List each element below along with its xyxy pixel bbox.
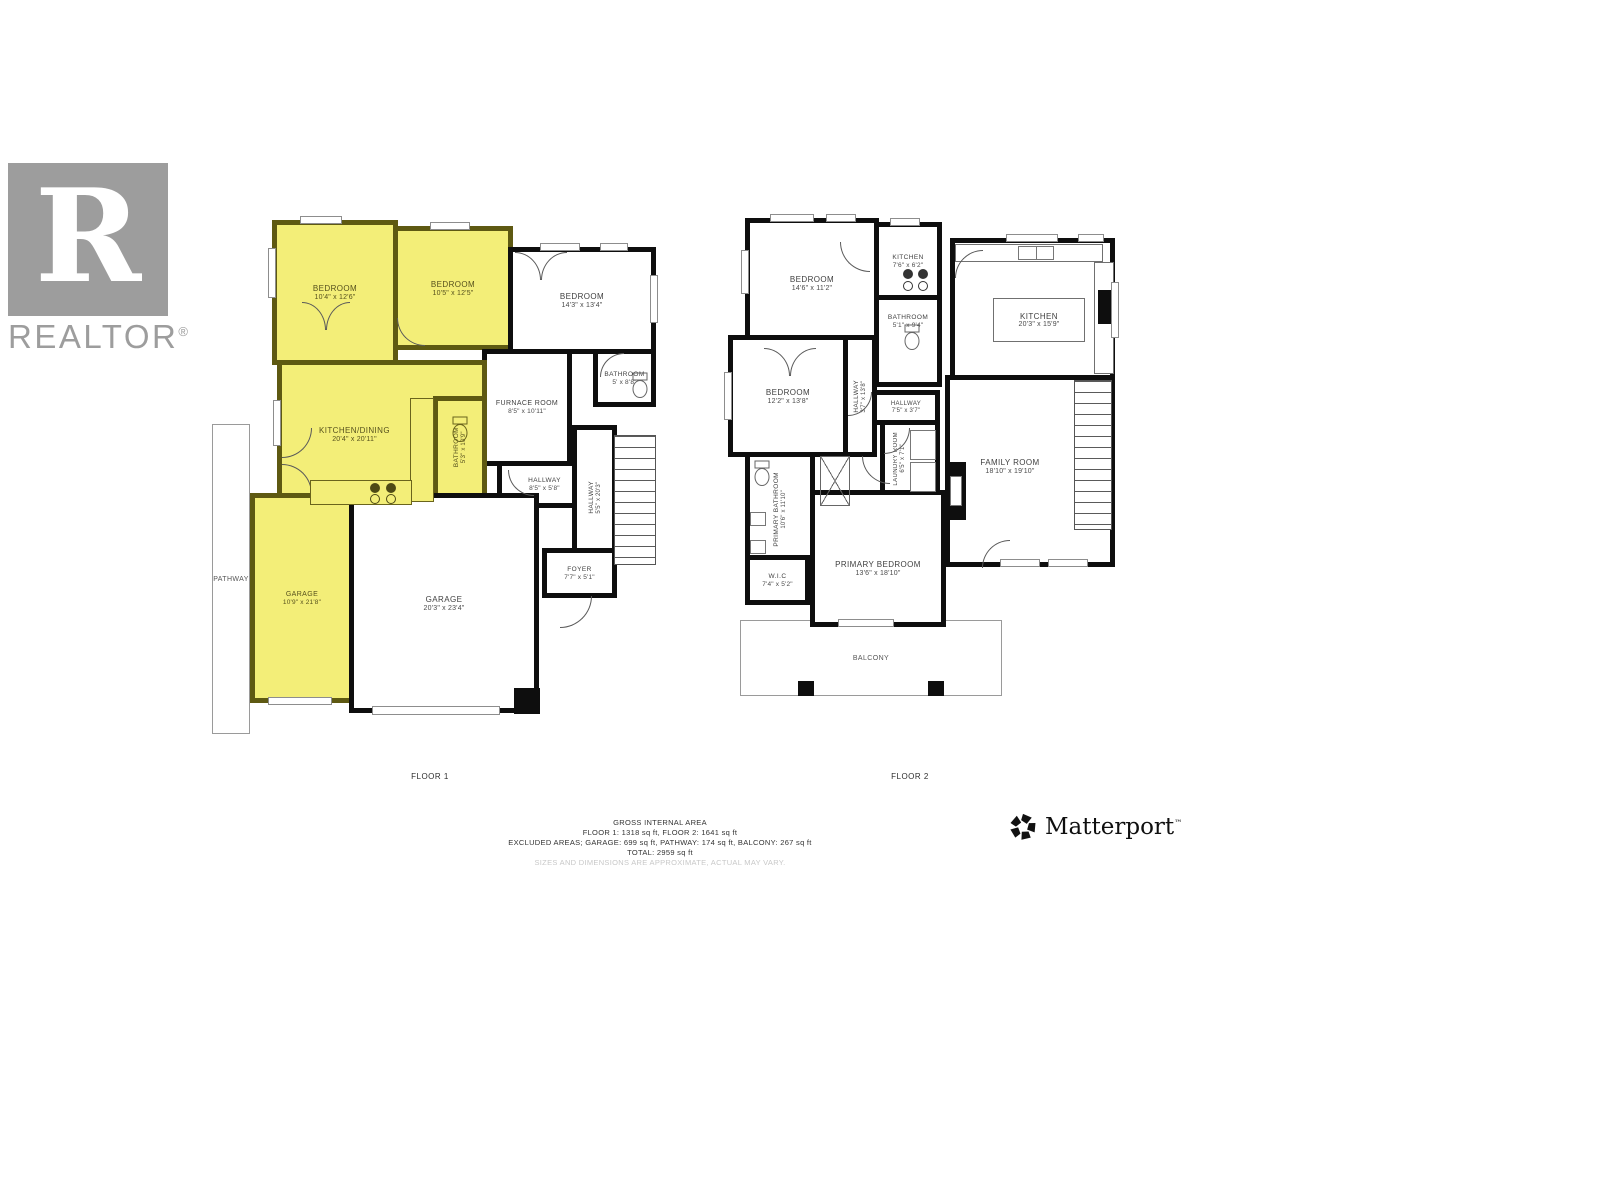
room-dims: 7'4" x 5'2"	[762, 581, 793, 588]
vanity-sink	[750, 512, 766, 526]
matterport-wordmark-text: Matterport	[1045, 814, 1174, 840]
room-dims: 20'3" x 23'4"	[424, 605, 465, 612]
room-dims: 10'4" x 12'6"	[314, 294, 355, 301]
room-name: PRIMARY BEDROOM	[835, 560, 921, 569]
area-summary-title: GROSS INTERNAL AREA	[420, 818, 900, 828]
window	[1006, 234, 1058, 242]
room-bedroom-b: BEDROOM 12'2" x 13'8"	[728, 335, 848, 457]
window	[540, 243, 580, 251]
room-dims: 10'9" x 21'8"	[283, 599, 321, 606]
room-name: KITCHEN/DINING	[319, 426, 390, 435]
toilet-icon	[630, 372, 650, 400]
staircase-floor1	[614, 435, 656, 565]
vanity-sink	[750, 540, 766, 554]
area-summary-total: TOTAL: 2959 sq ft	[420, 848, 900, 858]
toilet-icon	[752, 460, 772, 488]
window	[430, 222, 470, 230]
floor2-caption: FLOOR 2	[860, 772, 960, 781]
room-dims: 7'5" x 3'7"	[892, 408, 920, 414]
balcony-area: BALCONY	[740, 620, 1002, 696]
room-name: KITCHEN	[892, 254, 923, 261]
door-arc	[862, 456, 890, 484]
room-name: GARAGE	[426, 595, 463, 604]
realtor-wordmark: REALTOR®	[8, 318, 180, 356]
window	[770, 214, 814, 222]
window	[838, 619, 894, 627]
room-name: HALLWAY	[891, 401, 921, 407]
area-summary-excluded: EXCLUDED AREAS; GARAGE: 699 sq ft, PATHW…	[420, 838, 900, 848]
shower	[820, 456, 850, 506]
matterport-logo: Matterport™	[1008, 812, 1182, 842]
room-dims: 18'10" x 19'10"	[985, 468, 1034, 475]
area-summary-disclaimer: SIZES AND DIMENSIONS ARE APPROXIMATE, AC…	[420, 858, 900, 868]
room-name: BEDROOM	[313, 284, 357, 293]
room-name: FOYER	[567, 566, 591, 573]
room-dims: 12'2" x 13'8"	[767, 398, 808, 405]
room-dims: 13'6" x 18'10"	[855, 570, 900, 577]
window	[273, 400, 281, 446]
room-dims: 14'6" x 11'2"	[792, 285, 832, 292]
area-summary-floors: FLOOR 1: 1318 sq ft, FLOOR 2: 1641 sq ft	[420, 828, 900, 838]
window	[600, 243, 628, 251]
dryer	[910, 462, 936, 492]
realtor-r-letter: R	[35, 173, 141, 301]
floor1-caption: FLOOR 1	[380, 772, 480, 781]
window	[890, 218, 920, 226]
room-name: BEDROOM	[431, 280, 475, 289]
garage-door-opening	[268, 697, 332, 705]
room-bathroom-2: BATHROOM 5'3" x 10'9"	[433, 396, 487, 498]
room-name: BEDROOM	[790, 275, 834, 284]
room-name: GARAGE	[286, 591, 318, 598]
window	[1048, 559, 1088, 567]
window	[300, 216, 342, 224]
room-wic: W.I.C 7'4" x 5'2"	[745, 555, 810, 605]
room-bedroom-a: BEDROOM 14'6" x 11'2"	[745, 218, 879, 348]
window	[650, 275, 658, 323]
wall-post	[514, 688, 540, 714]
room-foyer: FOYER 7'7" x 5'1"	[542, 548, 617, 598]
room-primary-bedroom: PRIMARY BEDROOM 13'6" x 18'10"	[810, 490, 946, 627]
room-furnace: FURNACE ROOM 8'5" x 10'11"	[482, 349, 572, 466]
toilet-icon	[450, 416, 470, 444]
kitchen-island: KITCHEN 20'3" x 15'9"	[993, 298, 1085, 342]
kitchen-counter	[410, 398, 434, 502]
kitchen-sink	[1018, 246, 1054, 260]
pathway-area: PATHWAY	[212, 424, 250, 734]
room-dims: 10'6" x 11'10"	[781, 490, 787, 529]
room-garage-1: GARAGE 10'9" x 21'8"	[250, 493, 354, 703]
stove-burners-icon	[366, 481, 402, 505]
room-dims: 8'5" x 10'11"	[508, 408, 546, 415]
room-bedroom-1: BEDROOM 10'4" x 12'6"	[272, 220, 398, 365]
realtor-logo: R REALTOR®	[8, 163, 180, 356]
room-dims: 7'7" x 5'1"	[564, 574, 595, 581]
room-name: BEDROOM	[766, 388, 810, 397]
room-dims: 20'3" x 15'9"	[1019, 321, 1060, 328]
room-name: PRIMARY BATHROOM	[773, 472, 780, 547]
room-name: BEDROOM	[560, 292, 604, 301]
toilet-icon	[902, 324, 922, 352]
room-dims: 20'4" x 20'11"	[332, 436, 377, 443]
entry-door-arc	[560, 596, 592, 628]
room-dims: 5'5" x 20'3"	[596, 482, 602, 514]
window	[741, 250, 749, 294]
registered-mark: ®	[178, 324, 190, 339]
room-dims: 10'5" x 12'5"	[432, 290, 473, 297]
room-name: BALCONY	[853, 655, 889, 662]
room-name: PATHWAY	[213, 576, 249, 583]
matterport-pinwheel-icon	[1008, 812, 1038, 842]
room-garage-2: GARAGE 20'3" x 23'4"	[349, 493, 539, 713]
window	[1111, 282, 1119, 338]
window	[268, 248, 276, 298]
fireplace-inner	[950, 476, 962, 506]
room-name: W.I.C	[769, 573, 787, 580]
realtor-wordmark-text: REALTOR	[8, 318, 178, 355]
washer	[910, 430, 936, 460]
matterport-wordmark: Matterport™	[1045, 814, 1182, 840]
room-name: KITCHEN	[1020, 312, 1058, 321]
window	[826, 214, 856, 222]
realtor-block-icon: R	[8, 163, 168, 316]
area-summary: GROSS INTERNAL AREA FLOOR 1: 1318 sq ft,…	[420, 818, 900, 868]
room-name: HALLWAY	[588, 481, 595, 514]
floorplan-canvas: R REALTOR® PATHWAY BEDROOM 10'4" x 12'6"…	[0, 0, 1600, 1200]
balcony-post	[928, 681, 944, 696]
trademark-mark: ™	[1174, 818, 1182, 827]
garage-door-opening	[372, 706, 500, 715]
room-dims: 14'3" x 13'4"	[561, 302, 602, 309]
window	[1078, 234, 1104, 242]
room-name: BATHROOM	[888, 314, 928, 321]
stove-burners-icon	[900, 266, 932, 294]
staircase-floor2	[1074, 380, 1112, 530]
room-name: FURNACE ROOM	[496, 400, 558, 407]
window	[724, 372, 732, 420]
balcony-post	[798, 681, 814, 696]
room-dims: 6'5" x 7'1"	[900, 445, 906, 473]
room-name: FAMILY ROOM	[980, 458, 1039, 467]
